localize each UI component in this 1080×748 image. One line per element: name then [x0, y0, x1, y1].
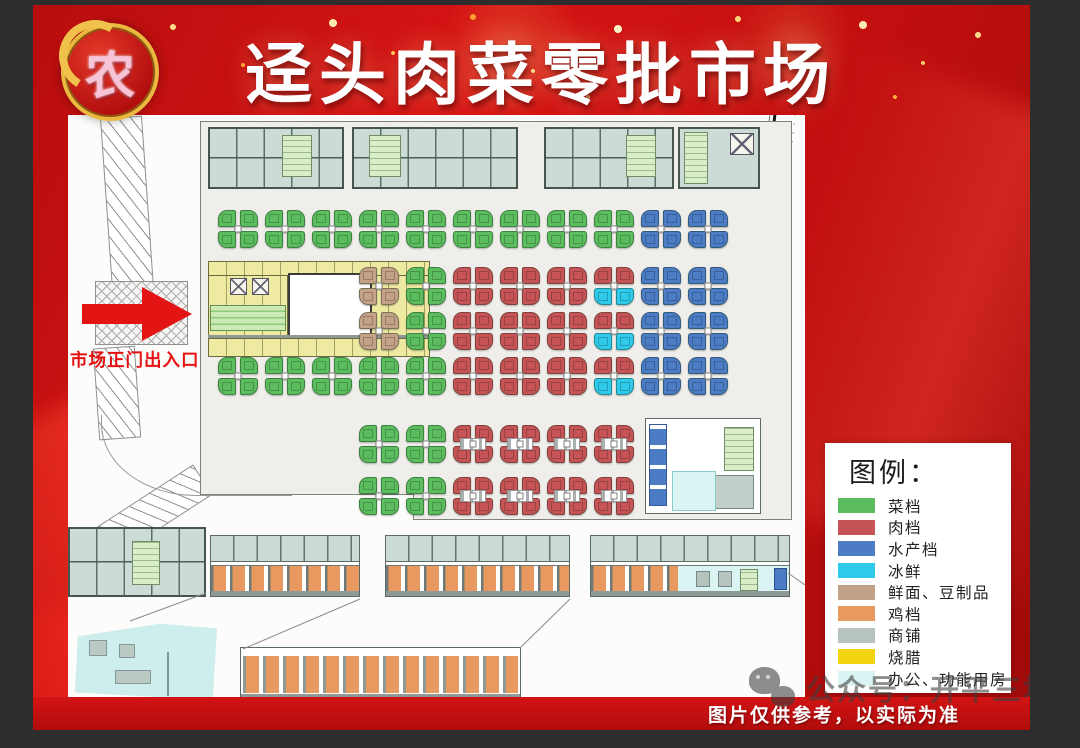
stall-corner	[500, 312, 518, 329]
stall-corner	[569, 378, 587, 395]
stall-corner	[663, 231, 681, 248]
stall-corner	[616, 267, 634, 284]
stall-corner	[359, 378, 377, 395]
stall-corner	[500, 231, 518, 248]
stall-corner	[240, 231, 258, 248]
stall-corner	[381, 333, 399, 350]
legend-item: 鲜面、豆制品	[838, 581, 1007, 603]
stall-center	[611, 328, 618, 335]
stall-center	[564, 493, 571, 500]
legend-swatch	[838, 520, 875, 535]
stall-corner	[688, 333, 706, 350]
stall-cluster-b	[688, 357, 728, 395]
stall-center	[423, 493, 430, 500]
stall-corner	[547, 267, 565, 284]
stall-center	[564, 226, 571, 233]
legend-swatch	[838, 563, 875, 578]
stall-cluster-rc	[594, 267, 634, 305]
chicken-stalls	[243, 656, 518, 693]
stall-center	[658, 328, 665, 335]
stall-corner	[359, 231, 377, 248]
stall-corner	[710, 210, 728, 227]
stall-center	[376, 441, 383, 448]
stall-center	[329, 373, 336, 380]
stall-cluster-rc	[594, 357, 634, 395]
stall-cluster-g	[359, 210, 399, 248]
stall-corner	[663, 288, 681, 305]
stall-corner	[500, 210, 518, 227]
seafood-cells	[649, 424, 667, 506]
stall-corner	[406, 210, 424, 227]
legend-label: 菜档	[888, 495, 922, 517]
office-room	[672, 471, 716, 511]
base-strip	[211, 591, 359, 596]
watermark-text: 公众号：开平三埠	[806, 667, 1030, 709]
stall-corner	[406, 267, 424, 284]
chat-bubble-small	[771, 686, 795, 707]
stall-corner	[710, 231, 728, 248]
legend-item: 烧腊	[838, 646, 1007, 668]
stall-center	[235, 226, 242, 233]
stall-corner	[475, 288, 493, 305]
stall-cluster-g	[406, 425, 446, 463]
stall-corner	[406, 288, 424, 305]
stall-corner	[547, 231, 565, 248]
stall-corner	[453, 210, 471, 227]
stall-corner	[475, 333, 493, 350]
stall-corner	[381, 288, 399, 305]
stall-corner	[406, 425, 424, 442]
stall-corner	[500, 288, 518, 305]
stall-cluster-rw	[453, 477, 493, 515]
legend-item: 水产档	[838, 538, 1007, 560]
stall-center	[517, 373, 524, 380]
stall-corner	[569, 357, 587, 374]
stall-center	[470, 283, 477, 290]
stall-center	[423, 328, 430, 335]
stall-corner	[688, 288, 706, 305]
stall-corner	[569, 288, 587, 305]
stall-corner	[287, 210, 305, 227]
stall-corner	[265, 231, 283, 248]
entrance-arrow	[82, 287, 194, 341]
stall-corner	[569, 312, 587, 329]
stall-cluster-rw	[547, 477, 587, 515]
legend-swatch	[838, 606, 875, 621]
stall-corner	[359, 288, 377, 305]
stall-corner	[547, 210, 565, 227]
stall-cluster-r	[500, 357, 540, 395]
stall-cluster-r	[547, 312, 587, 350]
stall-center	[423, 441, 430, 448]
stall-corner	[406, 231, 424, 248]
stall-cluster-r	[547, 267, 587, 305]
stall-corner	[406, 446, 424, 463]
stall-center	[705, 328, 712, 335]
legend-label: 商铺	[888, 624, 922, 646]
stall-cluster-g	[265, 357, 305, 395]
stall-cluster-g	[406, 210, 446, 248]
stall-center	[564, 373, 571, 380]
stall-cluster-g	[406, 267, 446, 305]
stall-cluster-b	[688, 210, 728, 248]
stall-corner	[569, 333, 587, 350]
stall-corner	[453, 231, 471, 248]
entrance-label: 市场正门出入口	[70, 347, 252, 372]
chicken-stalls	[386, 565, 569, 591]
stall-center	[423, 283, 430, 290]
legend-swatch	[838, 498, 875, 513]
stall-corner	[594, 312, 612, 329]
arrow-head	[142, 287, 192, 341]
stall-corner	[475, 312, 493, 329]
stall-corner	[334, 378, 352, 395]
stall-corner	[265, 378, 283, 395]
stall-corner	[428, 425, 446, 442]
stall-cluster-g	[406, 477, 446, 515]
stall-corner	[428, 267, 446, 284]
stall-corner	[381, 357, 399, 374]
stall-corner	[381, 498, 399, 515]
legend-item: 鸡档	[838, 603, 1007, 625]
stall-corner	[287, 357, 305, 374]
stall-corner	[663, 378, 681, 395]
stall-corner	[265, 357, 283, 374]
stall-cluster-rc	[594, 312, 634, 350]
stall-corner	[312, 231, 330, 248]
stall-cluster-g	[406, 312, 446, 350]
stall-corner	[218, 210, 236, 227]
stall-corner	[475, 231, 493, 248]
stall-corner	[359, 498, 377, 515]
stall-center	[658, 373, 665, 380]
stall-corner	[428, 288, 446, 305]
stall-corner	[381, 267, 399, 284]
stall-center	[376, 283, 383, 290]
stall-corner	[381, 446, 399, 463]
stall-center	[423, 373, 430, 380]
legend-swatch	[838, 541, 875, 556]
stall-cluster-g	[406, 357, 446, 395]
stall-corner	[688, 312, 706, 329]
legend-title: 图例：	[849, 451, 939, 490]
market-logo: 农	[61, 23, 159, 121]
chicken-stall-building-2	[385, 535, 570, 597]
stall-corner	[265, 210, 283, 227]
stall-cluster-g	[312, 357, 352, 395]
stall-corner	[218, 378, 236, 395]
stall-corner	[428, 446, 446, 463]
fixture	[89, 640, 107, 656]
stall-cluster-b	[641, 312, 681, 350]
fixture	[115, 670, 151, 684]
stall-cluster-b	[688, 312, 728, 350]
fixture	[718, 571, 732, 587]
stall-corner	[616, 357, 634, 374]
stall-corner	[710, 357, 728, 374]
stall-corner	[334, 357, 352, 374]
stall-corner	[359, 446, 377, 463]
stall-corner	[428, 378, 446, 395]
stall-corner	[428, 210, 446, 227]
stall-cluster-t	[359, 267, 399, 305]
stall-corner	[453, 378, 471, 395]
stall-corner	[663, 267, 681, 284]
stall-corner	[359, 333, 377, 350]
legend-box: 图例： 菜档肉档水产档冰鲜鲜面、豆制品鸡档商铺烧腊办公、功能用房	[825, 443, 1011, 693]
stairwell	[740, 569, 758, 591]
stall-center	[517, 493, 524, 500]
stall-cluster-r	[453, 267, 493, 305]
chicken-stall-strip	[240, 647, 521, 701]
fixture	[696, 571, 710, 587]
legend-item: 冰鲜	[838, 560, 1007, 582]
stall-corner	[359, 477, 377, 494]
stall-corner	[381, 231, 399, 248]
stall-center	[517, 328, 524, 335]
stall-corner	[641, 231, 659, 248]
stall-corner	[641, 378, 659, 395]
legend-label: 鲜面、豆制品	[888, 581, 990, 603]
stall-corner	[616, 333, 634, 350]
stall-cluster-g	[500, 210, 540, 248]
stall-corner	[616, 210, 634, 227]
stall-corner	[240, 210, 258, 227]
stall-corner	[475, 210, 493, 227]
stall-corner	[663, 333, 681, 350]
stall-corner	[663, 357, 681, 374]
stall-cluster-g	[359, 425, 399, 463]
office-block	[645, 418, 761, 514]
stall-corner	[312, 357, 330, 374]
stall-cluster-rw	[500, 477, 540, 515]
stall-center	[470, 441, 477, 448]
stall-center	[470, 493, 477, 500]
stall-cluster-g	[547, 210, 587, 248]
stall-center	[470, 226, 477, 233]
stall-corner	[688, 231, 706, 248]
shop-block-southwest	[68, 527, 206, 597]
stall-cluster-r	[453, 357, 493, 395]
stall-center	[705, 373, 712, 380]
stall-center	[329, 226, 336, 233]
stall-corner	[428, 477, 446, 494]
stall-corner	[428, 231, 446, 248]
stall-corner	[547, 378, 565, 395]
chicken-stalls	[591, 565, 678, 591]
stall-corner	[381, 477, 399, 494]
stall-corner	[547, 312, 565, 329]
stall-corner	[453, 288, 471, 305]
stall-cluster-rw	[453, 425, 493, 463]
stall-corner	[688, 357, 706, 374]
stall-corner	[522, 210, 540, 227]
stall-corner	[475, 378, 493, 395]
stall-corner	[522, 378, 540, 395]
function-room	[710, 475, 754, 509]
stall-corner	[381, 210, 399, 227]
stall-corner	[406, 357, 424, 374]
stall-corner	[218, 231, 236, 248]
stairwell	[132, 541, 160, 585]
stall-center	[282, 373, 289, 380]
stall-corner	[287, 231, 305, 248]
stall-corner	[359, 210, 377, 227]
stall-corner	[406, 333, 424, 350]
stall-corner	[522, 312, 540, 329]
stall-cluster-g	[594, 210, 634, 248]
shops-row	[386, 536, 569, 562]
stall-corner	[406, 477, 424, 494]
stall-corner	[334, 231, 352, 248]
stall-corner	[500, 267, 518, 284]
legend-item: 商铺	[838, 625, 1007, 647]
legend-label: 水产档	[888, 538, 939, 560]
stall-corner	[594, 288, 612, 305]
stall-corner	[547, 288, 565, 305]
fixture	[119, 644, 135, 658]
stall-corner	[381, 378, 399, 395]
stall-corner	[569, 231, 587, 248]
shops-row	[591, 536, 789, 562]
stall-corner	[616, 378, 634, 395]
stall-cluster-g	[218, 210, 258, 248]
shops-row	[211, 536, 359, 562]
stall-corner	[641, 288, 659, 305]
stall-center	[423, 226, 430, 233]
stall-corner	[594, 231, 612, 248]
stall-corner	[428, 333, 446, 350]
stall-center	[564, 328, 571, 335]
stall-corner	[359, 312, 377, 329]
stall-corner	[569, 267, 587, 284]
chicken-stall-building-1	[210, 535, 360, 597]
stall-corner	[453, 267, 471, 284]
stall-corner	[334, 210, 352, 227]
stall-corner	[688, 378, 706, 395]
stall-corner	[547, 357, 565, 374]
stall-corner	[359, 267, 377, 284]
stall-center	[611, 441, 618, 448]
stall-cluster-r	[453, 312, 493, 350]
stall-cluster-b	[641, 357, 681, 395]
stall-corner	[453, 312, 471, 329]
legend-items: 菜档肉档水产档冰鲜鲜面、豆制品鸡档商铺烧腊办公、功能用房	[838, 495, 1007, 689]
stall-corner	[594, 357, 612, 374]
stall-center	[376, 226, 383, 233]
stall-center	[376, 373, 383, 380]
stall-corner	[710, 378, 728, 395]
stall-cluster-g	[453, 210, 493, 248]
stall-cluster-r	[500, 312, 540, 350]
legend-item: 肉档	[838, 517, 1007, 539]
screen: 农 迳头肉菜零批市场	[0, 0, 1080, 748]
stall-corner	[641, 210, 659, 227]
stall-center	[658, 283, 665, 290]
stall-center	[705, 226, 712, 233]
stall-center	[517, 441, 524, 448]
stall-corner	[500, 333, 518, 350]
stairwell	[724, 427, 754, 471]
office-function-building	[75, 622, 217, 701]
stall-corner	[406, 312, 424, 329]
stall-corner	[475, 357, 493, 374]
stall-center	[376, 328, 383, 335]
stall-corner	[428, 498, 446, 515]
stall-corner	[710, 288, 728, 305]
logo-character: 农	[65, 27, 155, 117]
base-strip	[591, 591, 789, 596]
base-strip	[386, 591, 569, 596]
stall-corner	[710, 333, 728, 350]
wechat-icon	[749, 667, 797, 709]
stall-cluster-r	[547, 357, 587, 395]
stall-corner	[616, 312, 634, 329]
stall-center	[611, 226, 618, 233]
page-title: 迳头肉菜零批市场	[161, 21, 921, 117]
stall-corner	[500, 357, 518, 374]
stall-cluster-b	[688, 267, 728, 305]
legend-label: 肉档	[888, 516, 922, 538]
stall-corner	[428, 312, 446, 329]
stall-center	[564, 441, 571, 448]
stall-cluster-b	[641, 210, 681, 248]
stall-corner	[569, 210, 587, 227]
stall-cluster-g	[265, 210, 305, 248]
stall-corner	[710, 267, 728, 284]
stall-corner	[641, 312, 659, 329]
stall-cluster-rw	[547, 425, 587, 463]
stall-corner	[641, 333, 659, 350]
stall-corner	[428, 357, 446, 374]
stall-corner	[594, 333, 612, 350]
stall-corner	[453, 357, 471, 374]
stall-corner	[453, 333, 471, 350]
stall-corner	[663, 312, 681, 329]
stall-corner	[547, 333, 565, 350]
stall-corner	[616, 231, 634, 248]
stall-corner	[522, 333, 540, 350]
chicken-stall-building-3	[590, 535, 790, 597]
floor-plan: 市场正门出入口	[68, 115, 805, 701]
stall-corner	[500, 378, 518, 395]
wall	[167, 652, 169, 696]
legend-label: 冰鲜	[888, 560, 922, 582]
arrow-bar	[82, 304, 146, 324]
stall-corner	[522, 288, 540, 305]
stall-center	[564, 283, 571, 290]
stall-cluster-t	[359, 312, 399, 350]
stall-center	[705, 283, 712, 290]
stall-cluster-g	[312, 210, 352, 248]
stall-corner	[287, 378, 305, 395]
stall-center	[470, 328, 477, 335]
stall-corner	[522, 267, 540, 284]
legend-swatch	[838, 585, 875, 600]
chicken-stalls	[211, 565, 359, 591]
legend-swatch	[838, 628, 875, 643]
stall-corner	[616, 288, 634, 305]
stall-corner	[312, 210, 330, 227]
stall-center	[517, 226, 524, 233]
stall-corner	[663, 210, 681, 227]
legend-item: 菜档	[838, 495, 1007, 517]
stall-cluster-b	[641, 267, 681, 305]
stall-center	[611, 373, 618, 380]
stall-center	[611, 283, 618, 290]
stall-corner	[312, 378, 330, 395]
stall-corner	[522, 357, 540, 374]
